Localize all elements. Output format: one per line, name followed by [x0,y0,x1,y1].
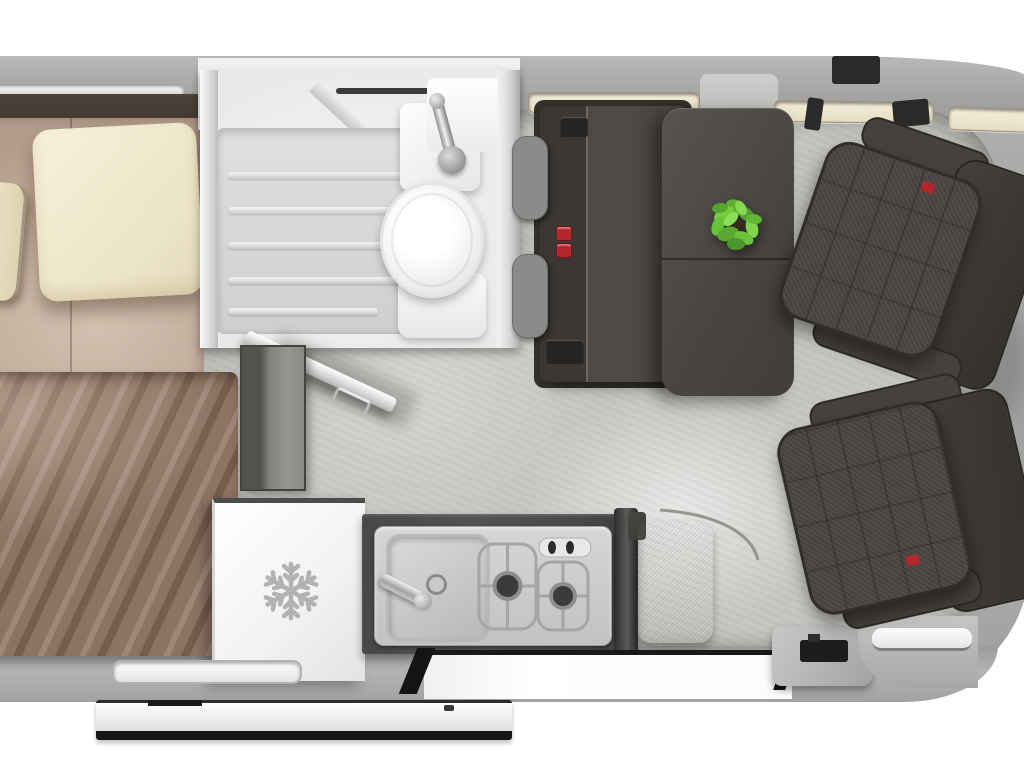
hob-knob-icon [566,541,574,554]
window-cab-right-icon [948,106,1024,134]
plant-icon [698,186,774,262]
door-roller [444,705,454,711]
seat-rail-bracket [560,117,588,137]
sliding-door-panel [96,700,512,740]
knob-panel [539,538,591,557]
sink-drain-icon [426,574,447,595]
faucet-head [438,146,466,174]
burner-icon [551,584,575,608]
burner-icon [495,573,521,599]
seatbelt-buckle [556,226,572,241]
bed-end-partition [240,345,306,491]
window-rear-bottom-icon [112,660,302,684]
bathroom-wall-left [200,70,218,348]
door-rail-notch [148,700,202,706]
pillow-main [32,122,205,302]
tray-ridge [228,172,424,179]
snowflake-icon [259,559,323,623]
gas-hob [474,534,614,640]
sofa-headrest [512,254,548,338]
hob-knob-icon [548,541,556,554]
faucet-cap [429,93,445,109]
seat-rail-bracket [546,340,584,364]
bed-blanket [0,372,238,656]
tray-ridge [228,308,378,315]
sliding-door-opening [424,650,792,699]
refrigerator [212,498,365,681]
toilet [380,182,484,298]
kitchen-faucet-elbow [414,592,432,610]
sofa-headrest [512,136,548,220]
floorplan-render [0,0,1024,768]
pillar-bracket [832,56,880,84]
seatbelt-buckle [556,243,572,258]
